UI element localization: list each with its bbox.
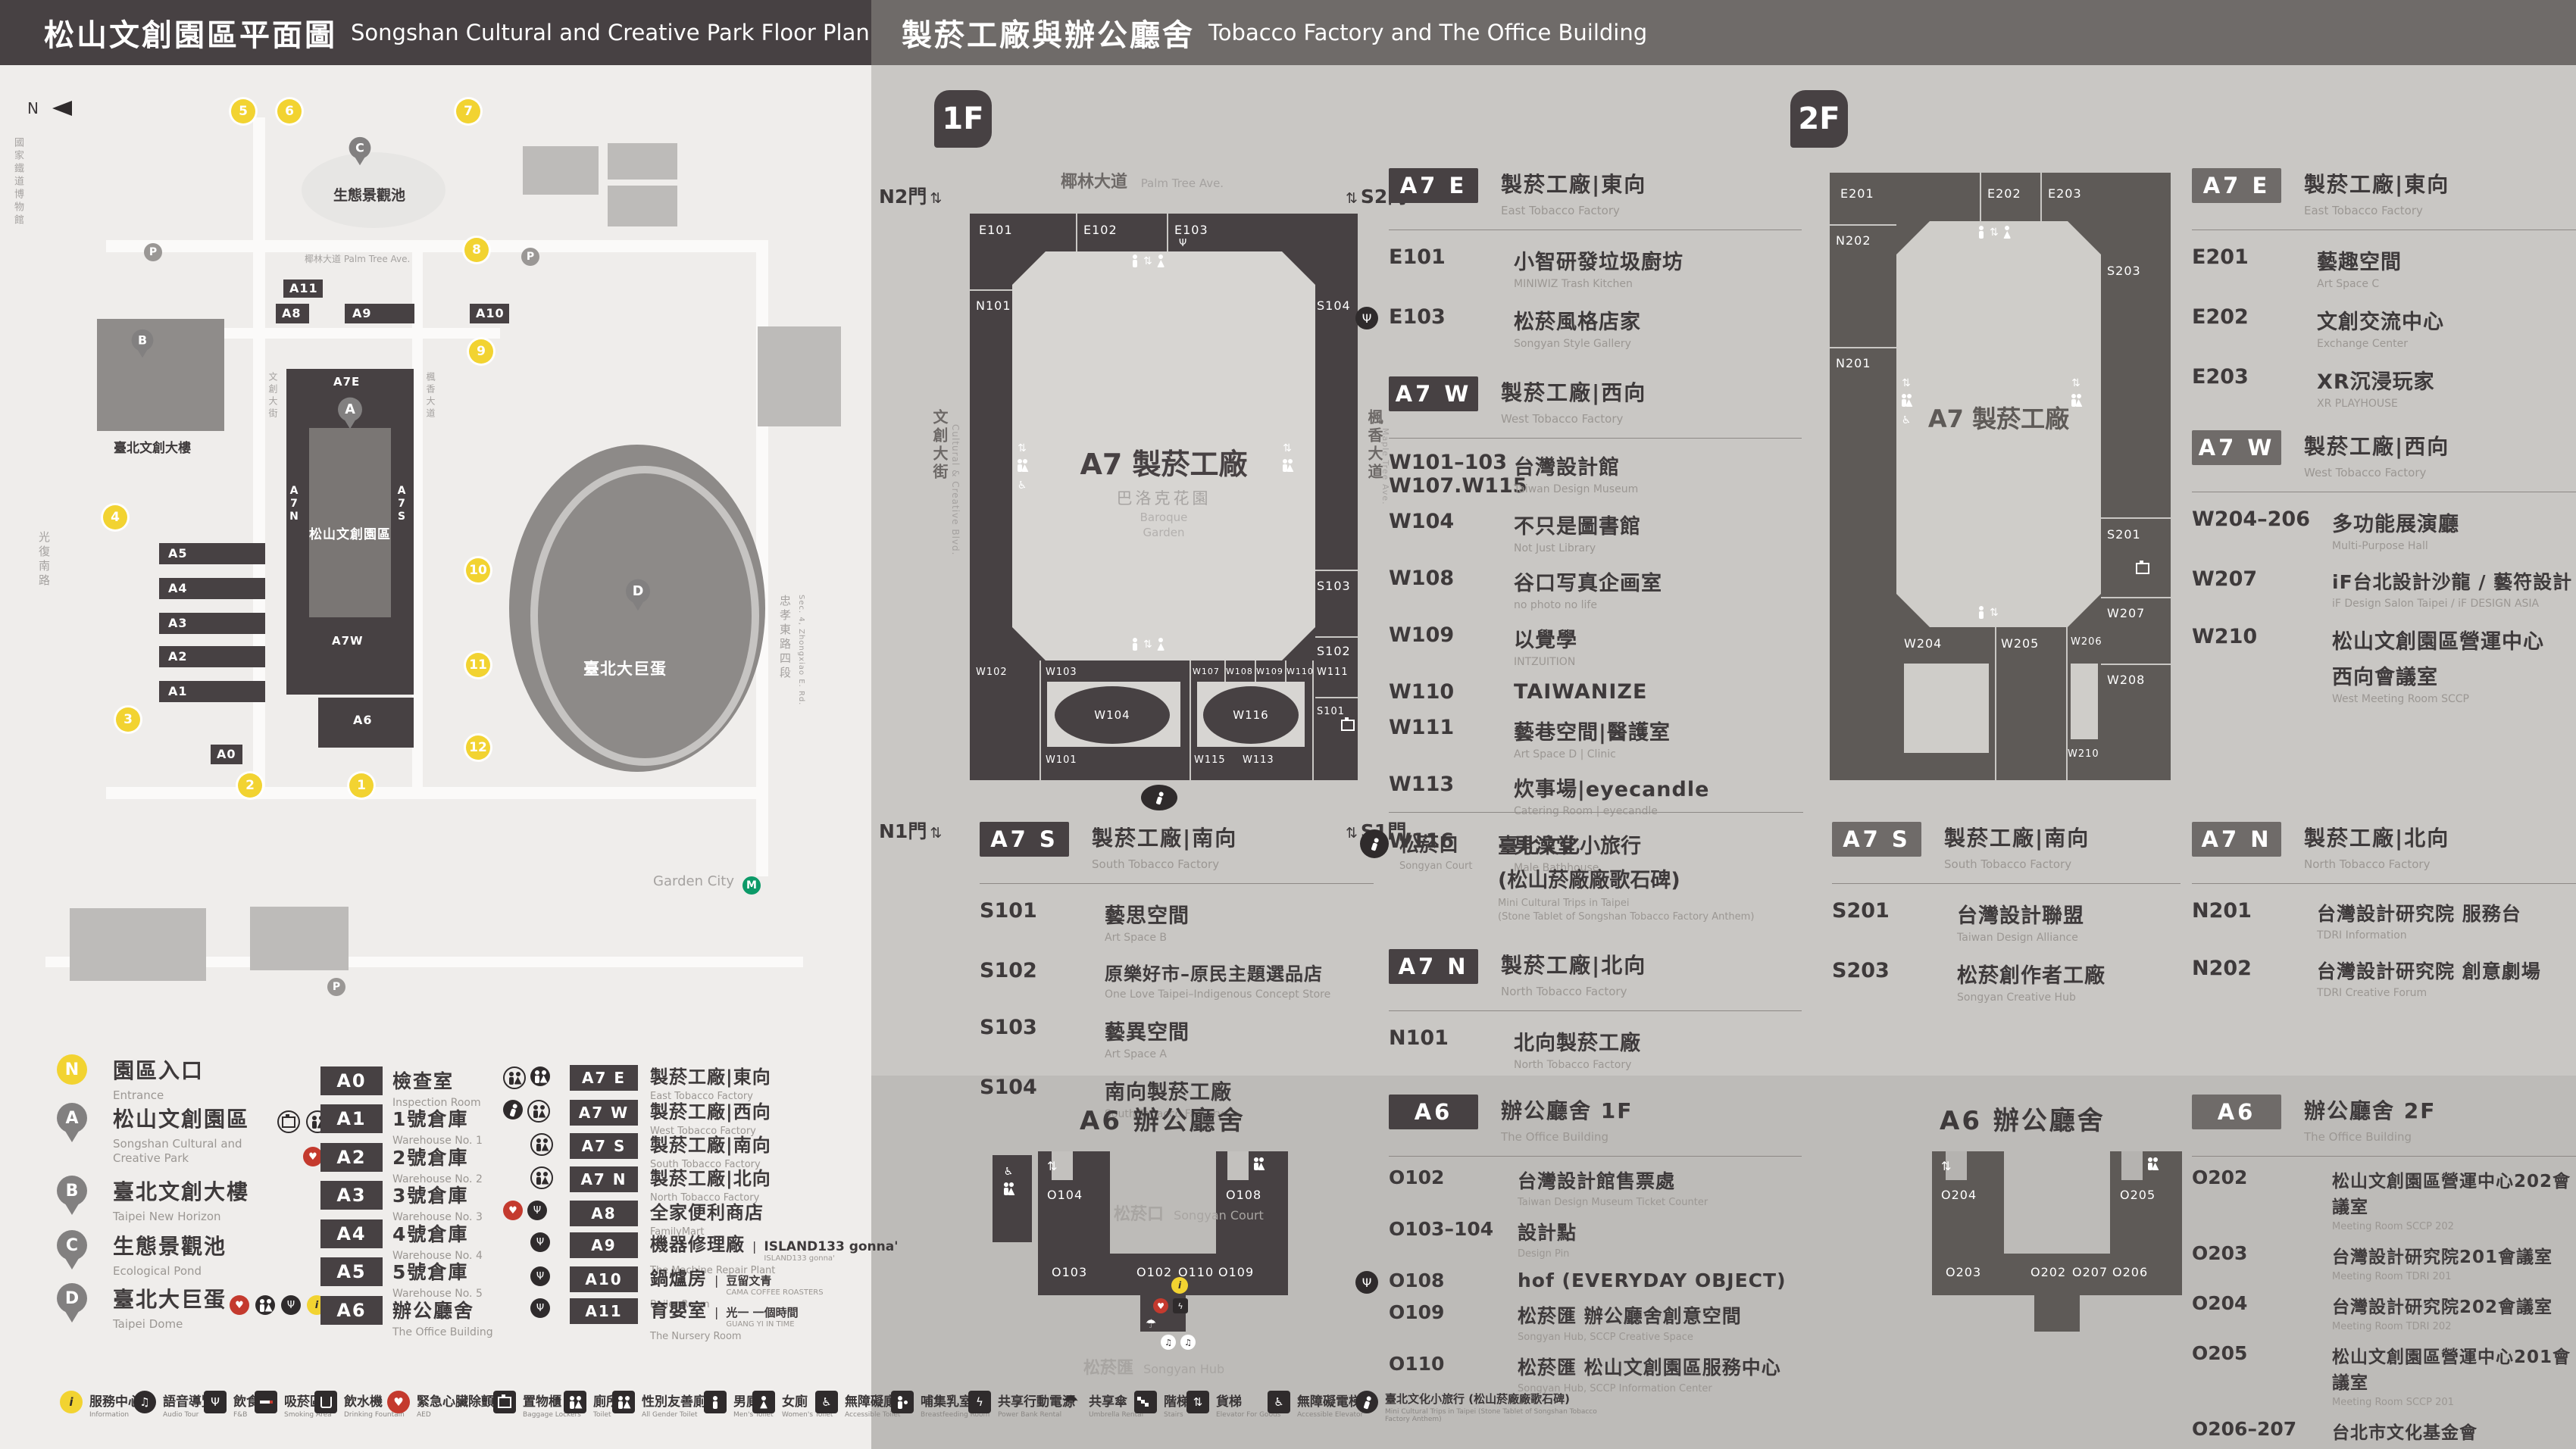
- badge-a6: A6: [320, 1296, 383, 1325]
- room-row: O205 松山文創園區營運中心201會議室Meeting Room SCCP 2…: [2192, 1342, 2576, 1408]
- guangfu-road-label: 光復南路: [36, 531, 52, 589]
- divider: [980, 883, 1374, 884]
- room-en: TDRI Information: [2317, 929, 2521, 942]
- section-badge: A7 W: [1389, 376, 1478, 411]
- plan-room-w113: W113: [1243, 754, 1274, 766]
- a6f1-list-section: A6 辦公廳舍 1F The Office Building O102 台灣設計…: [1389, 1095, 1802, 1394]
- plan-room-s102: S102: [1317, 644, 1351, 658]
- plan-room-e202: E202: [1987, 186, 2021, 201]
- lockers-icon: [1341, 720, 1355, 734]
- facility-item: ⇅貨梯Elevator For Goods: [1186, 1391, 1280, 1419]
- info-icon: i: [1171, 1277, 1188, 1294]
- divider: [2192, 492, 2576, 492]
- legend-zh: 辦公廳舍: [392, 1296, 493, 1323]
- pin-c: C: [349, 137, 371, 167]
- gate-label: N2門: [879, 186, 927, 208]
- shop-name: 光一 一個時間: [726, 1306, 798, 1319]
- section-title-en: West Tobacco Factory: [1501, 412, 1646, 426]
- badge-a1: A1: [320, 1104, 383, 1133]
- person-glyph: [515, 1072, 521, 1085]
- north-arrow: N: [27, 99, 72, 117]
- person-glyph: [2152, 1157, 2158, 1170]
- room-row: W108 谷口写真企画室no photo no life: [1389, 567, 1802, 611]
- toilet-glyph: [2147, 1157, 2158, 1173]
- street-en: Palm Tree Ave.: [1141, 176, 1224, 190]
- entrance-9: 9: [469, 339, 493, 364]
- toilet-glyph: [1003, 1182, 1014, 1198]
- person-glyph: [1978, 226, 1984, 239]
- legend-en: Songshan Cultural and Creative Park: [113, 1137, 287, 1166]
- entrance-1: 1: [349, 773, 374, 798]
- divider: [2101, 597, 2171, 598]
- warehouse-a5: A5: [159, 543, 265, 564]
- stairs-glyph: ⇅: [1902, 377, 1911, 389]
- divider: [2040, 173, 2042, 221]
- cc-blvd-label: 文創大街: [929, 409, 951, 482]
- toilet-glyph: [1282, 459, 1293, 475]
- mens-toilet-icon: [704, 1391, 727, 1413]
- north-label: N: [27, 99, 39, 117]
- zhongxiao-road-label-en: Sec. 4, Zhongxiao E. Rd.: [797, 595, 805, 705]
- row-icons: [503, 1066, 550, 1089]
- room-en: One Love Taipei–Indigenous Concept Store: [1105, 988, 1330, 1001]
- aed-icon: ♥: [503, 1201, 523, 1220]
- room-code: W104: [1389, 510, 1514, 554]
- room-row: W101–103W107.W115 台灣設計館Taiwan Design Mus…: [1389, 451, 1802, 498]
- room-en: Art Space D | Clinic: [1514, 748, 1671, 760]
- stairs-glyph: ⇅: [1941, 1159, 1952, 1173]
- a7-courtyard: [309, 428, 391, 617]
- plan-room-w108: W108: [1226, 667, 1253, 676]
- room-row: O109 松菸匯 辦公廳舍創意空間Songyan Hub, SCCP Creat…: [1389, 1301, 1802, 1343]
- section-badge: A6: [1389, 1095, 1478, 1129]
- room-zh: 松菸匯 松山文創園區服務中心: [1518, 1353, 1781, 1380]
- lockers-icon: [2136, 563, 2149, 577]
- room-zh: 多功能展演廳: [2332, 507, 2459, 537]
- pin-letter: B: [57, 1176, 87, 1206]
- court-en: Songyan Court: [1399, 860, 1498, 872]
- plan-room-e201: E201: [1840, 186, 1874, 201]
- a6f2-south-stub: [2034, 1295, 2080, 1332]
- badge-a10: A10: [570, 1266, 638, 1292]
- plan-room-e102: E102: [1083, 223, 1118, 237]
- room-en: Songyan Hub, SCCP Creative Space: [1518, 1332, 1742, 1343]
- a6f1-plan-title: A6 辦公廳舍: [1080, 1100, 1246, 1137]
- parking-icon: P: [144, 243, 162, 261]
- plan-room-s104: S104: [1317, 298, 1351, 313]
- map-a7e-label: A7E: [333, 375, 360, 389]
- room-en: Meeting Room SCCP 202: [2332, 1221, 2576, 1232]
- person-glyph: [617, 1396, 623, 1409]
- badge-a0: A0: [320, 1066, 383, 1095]
- room-zh: 台灣設計聯盟: [1957, 899, 2084, 929]
- room-row: E203 XR沉浸玩家XR PLAYHOUSE: [2192, 365, 2576, 410]
- room-row: N202 台灣設計研究院 創意劇場TDRI Creative Forum: [2192, 957, 2576, 999]
- legend-zh: 機器修理廠: [650, 1229, 745, 1256]
- room-code: W108: [1389, 567, 1514, 611]
- room-zh: 以覺學: [1514, 623, 1577, 653]
- room-row: O110 松菸匯 松山文創園區服務中心Songyan Hub, SCCP Inf…: [1389, 1353, 1802, 1394]
- aed-icon: ♥: [1153, 1298, 1168, 1313]
- walker-glyph: [1155, 791, 1164, 804]
- room-zh: 台灣設計館: [1514, 451, 1638, 480]
- section-title-en: East Tobacco Factory: [1501, 204, 1646, 217]
- plan-room-o104: O104: [1047, 1188, 1083, 1202]
- a9-block: A9: [345, 304, 414, 323]
- room-row: S201 台灣設計聯盟Taiwan Design Alliance: [1832, 899, 2181, 944]
- room-row: W104 不只是圖書館Not Just Library: [1389, 510, 1802, 554]
- cigarette-glyph: [260, 1401, 272, 1404]
- plan-room-w102: W102: [976, 667, 1008, 678]
- walker-icon: [503, 1100, 523, 1120]
- room-en: Meeting Room TDRI 202: [2332, 1321, 2553, 1332]
- plan-room-n201: N201: [1836, 356, 1871, 370]
- entrance-6: 6: [277, 99, 302, 123]
- room-zh: 松菸風格店家: [1514, 305, 1641, 335]
- badge-a4: A4: [320, 1219, 383, 1248]
- room-en: Multi-Purpose Hall: [2332, 540, 2459, 552]
- fnb-icon: Ψ: [530, 1298, 550, 1318]
- goods-elevator-icon: ⇅: [1186, 1391, 1209, 1413]
- room-en: Taiwan Design Museum: [1514, 483, 1638, 495]
- legend-en: Entrance: [113, 1088, 204, 1103]
- f1-court-section: 松菸口 Songyan Court 臺北文化小旅行 (松山菸廠廠歌石碑) Min…: [1360, 812, 1803, 923]
- person-glyph: [624, 1396, 630, 1409]
- shop-name-en: GUANG YI IN TIME: [726, 1320, 798, 1329]
- taipei-new-horizon-building: [97, 319, 224, 431]
- toilet-icon: [255, 1295, 275, 1315]
- room-row: N201 台灣設計研究院 服務台TDRI Information: [2192, 899, 2576, 942]
- facility-en: Stairs: [1164, 1411, 1190, 1419]
- room-row: E202 文創交流中心Exchange Center: [2192, 305, 2576, 350]
- plan-room-w205: W205: [2001, 636, 2039, 651]
- accessible-elevator-icon: ♿: [1268, 1391, 1290, 1413]
- a6f2-doorway: [2121, 1151, 2143, 1180]
- map-a9-label: A9: [352, 306, 372, 320]
- palm-ave-label: 椰林大道 Palm Tree Ave.: [305, 252, 410, 265]
- garden-label-en2: Garden: [1012, 526, 1315, 539]
- room-row: O203 台灣設計研究院201會議室Meeting Room TDRI 201: [2192, 1242, 2576, 1282]
- room-code: E201: [2192, 245, 2317, 290]
- railway-museum-label: 國家鐵道博物館: [11, 137, 25, 227]
- section-title-zh: 製菸工廠|東向: [1501, 168, 1646, 198]
- building-block: [758, 326, 841, 426]
- room-row: S103 藝異空間Art Space A: [980, 1016, 1374, 1060]
- plan-room-s203: S203: [2107, 264, 2141, 278]
- plan-room-o109: O109: [1218, 1265, 1254, 1279]
- plan-room-n101: N101: [976, 298, 1011, 313]
- badge-a3: A3: [320, 1181, 383, 1210]
- section-title-en: West Tobacco Factory: [2304, 466, 2449, 479]
- facility-zh: 臺北文化小旅行 (松山菸廠廠歌石碑): [1385, 1391, 1620, 1407]
- garden-label-en1: Baroque: [1012, 511, 1315, 524]
- room-zh: 炊事場|eyecandle: [1514, 773, 1709, 802]
- warehouse-a3: A3: [159, 613, 265, 634]
- aed-icon: ♥: [230, 1295, 249, 1315]
- stairs-glyph: ⇅: [2071, 377, 2080, 389]
- legend-zh: 松山文創園區: [113, 1103, 287, 1133]
- fnb-icon: Ψ: [530, 1232, 550, 1252]
- divider: [2192, 1156, 2576, 1157]
- badge-a9: A9: [570, 1232, 638, 1258]
- room-en: Songyan Creative Hub: [1957, 992, 2106, 1004]
- entrance-badge: N: [57, 1054, 87, 1085]
- a6f2-plan-title: A6 辦公廳舍: [1940, 1100, 2106, 1137]
- legend-zh: 育嬰室: [650, 1295, 707, 1322]
- person-glyph: [1978, 606, 1984, 619]
- person-glyph: [536, 1138, 541, 1151]
- facility-item: Ψ飲食F&B: [204, 1391, 259, 1419]
- plan-room-w116: W116: [1203, 686, 1299, 744]
- divider: [1315, 636, 1358, 638]
- breastfeeding-icon: [891, 1391, 914, 1413]
- accessible-toilet-icon: ♿: [815, 1391, 838, 1413]
- room-zh: iF台北設計沙龍 / 藝符設計: [2332, 567, 2572, 595]
- entrance-10: 10: [466, 558, 490, 582]
- plan-room-e103: E103: [1174, 223, 1208, 237]
- legend-zh: 製菸工廠|西向: [650, 1097, 771, 1123]
- room-en: Meeting Room TDRI 201: [2332, 1271, 2553, 1282]
- room-row: W109 以覺學INTZUITION: [1389, 623, 1802, 668]
- left-title-en: Songshan Cultural and Creative Park Floo…: [351, 20, 870, 45]
- park-overview-map: N 國家鐵道博物館 C 生態景觀池 B 臺北文創大樓: [0, 72, 871, 1051]
- toilet-icon: [527, 1100, 550, 1123]
- row-icons: Ψ: [530, 1266, 550, 1286]
- plan-room-w204: W204: [1904, 636, 1942, 651]
- audio-tour-icon: ♫: [133, 1391, 156, 1413]
- fnb-icon: Ψ: [527, 1201, 547, 1220]
- street-zh: 椰林大道: [1061, 173, 1127, 192]
- legend-place-dome: D 臺北大巨蛋 Taipei Dome: [57, 1283, 227, 1332]
- road: [106, 787, 767, 799]
- shop-name: ISLAND133 gonna': [764, 1239, 898, 1254]
- room-zh: 松菸匯 辦公廳舍創意空間: [1518, 1301, 1742, 1329]
- person-glyph: [542, 1172, 548, 1185]
- room-code: W110: [1389, 680, 1514, 704]
- section-title-zh: 製菸工廠|南向: [1092, 822, 1237, 852]
- room-row: S102 原樂好市–原民主題選品店One Love Taipei–Indigen…: [980, 959, 1374, 1001]
- divider: [1995, 627, 1996, 780]
- floor-plan-poster: 松山文創園區平面圖 Songshan Cultural and Creative…: [0, 0, 2576, 1449]
- map-a8-label: A8: [282, 306, 302, 320]
- room-code: O205: [2192, 1342, 2332, 1408]
- badge-a7s: A7 S: [570, 1133, 638, 1159]
- court-title-en2: (Stone Tablet of Songshan Tobacco Factor…: [1498, 911, 1754, 923]
- legend-zh: 臺北文創大樓: [113, 1176, 249, 1206]
- legend-zh: 5號倉庫: [392, 1257, 483, 1285]
- plan-room-w110: W110: [1286, 667, 1314, 676]
- accessible-glyph: ♿: [1018, 479, 1027, 492]
- divider: [2192, 230, 2576, 230]
- plan-room-w109: W109: [1256, 667, 1283, 676]
- row-icons: Ψ: [530, 1298, 550, 1318]
- room-en: Art Space B: [1105, 932, 1190, 944]
- row-icons: ♥ Ψ: [503, 1201, 547, 1220]
- plan-room-w206: W206: [2071, 636, 2102, 648]
- fnb-icon: Ψ: [204, 1391, 227, 1413]
- info-icon: i: [60, 1391, 83, 1413]
- room-code: N101: [1389, 1026, 1514, 1071]
- divider: [1389, 438, 1802, 439]
- divider: [1832, 883, 2181, 884]
- room-code: E101: [1389, 245, 1514, 290]
- warehouse-a1: A1: [159, 681, 265, 702]
- room-zh: 藝巷空間|醫護室: [1514, 716, 1671, 745]
- stairs-glyph: ⇅: [1047, 1159, 1058, 1173]
- pin-a-letter: A: [338, 398, 362, 422]
- room-zh: 文創交流中心: [2317, 305, 2444, 335]
- facility-cluster-icon: ⇅: [2071, 377, 2081, 410]
- divider: [2192, 883, 2576, 884]
- gate-n1: N1門⇅: [879, 817, 945, 844]
- plan-room-w103: W103: [1046, 667, 1077, 678]
- room-light-area: [1904, 664, 1989, 753]
- room-code: E202: [2192, 305, 2317, 350]
- legend-zh: 製菸工廠|東向: [650, 1062, 771, 1088]
- room-en: no photo no life: [1514, 599, 1662, 611]
- person-glyph: [536, 1172, 541, 1185]
- entrance-2: 2: [238, 773, 262, 798]
- pin-letter: C: [57, 1230, 87, 1260]
- legend-en: Ecological Pond: [113, 1264, 227, 1279]
- room-en: Design Pin: [1518, 1248, 1577, 1260]
- room-en: Taiwan Design Museum Ticket Counter: [1518, 1197, 1708, 1208]
- plan-room-o110: O110: [1178, 1265, 1214, 1279]
- section-title-en: South Tobacco Factory: [1944, 857, 2090, 871]
- room-en: Art Space C: [2317, 278, 2402, 290]
- person-glyph: [2071, 394, 2076, 407]
- facility-item: ♥緊急心臟除顫器AED: [387, 1391, 507, 1419]
- row-icons: Ψ: [530, 1232, 550, 1252]
- warehouse-a2: A2: [159, 646, 265, 667]
- locker-glyph: [2136, 563, 2149, 574]
- parking-icon: P: [521, 248, 539, 266]
- entrance-11: 11: [466, 653, 490, 677]
- room-zh: 台北市文化基金會: [2332, 1418, 2576, 1444]
- pin-a: A: [338, 398, 362, 432]
- room-zh: 台灣設計研究院201會議室: [2332, 1242, 2553, 1268]
- toilet-glyph: [2071, 394, 2081, 410]
- facility-en: Mini Cultural Trips in Taipei (Stone Tab…: [1385, 1408, 1620, 1423]
- row-icons: [503, 1100, 550, 1123]
- plan-room-o203: O203: [1946, 1265, 1981, 1279]
- a0-block: A0: [211, 745, 242, 764]
- person-glyph: [2147, 1157, 2152, 1170]
- lockers-icon: [493, 1391, 516, 1413]
- room-en: TDRI Creative Forum: [2317, 987, 2541, 999]
- facility-zh: 無障礙電梯: [1297, 1391, 1363, 1410]
- person-glyph: [1287, 459, 1293, 472]
- map-a10-label: A10: [476, 306, 505, 320]
- pin-b-letter: B: [132, 329, 154, 351]
- room-row: O103–104 設計點Design Pin: [1389, 1218, 1802, 1260]
- pin-a-legend: A: [57, 1103, 87, 1145]
- room-zh2: 西向會議室: [2332, 660, 2544, 690]
- section-badge: A7 N: [1389, 949, 1478, 984]
- toilet-glyph: [1017, 459, 1027, 475]
- room-en: XR PLAYHOUSE: [2317, 398, 2435, 410]
- f2-plan: A7 製菸工廠 E201 E202 E203 N202 N201 S203 S2…: [1830, 173, 2171, 780]
- room-code: W109: [1389, 623, 1514, 668]
- room-en: Exchange Center: [2317, 338, 2444, 350]
- a8-block: A8: [276, 304, 309, 323]
- section-badge: A7 W: [2192, 430, 2281, 465]
- divider: [1039, 660, 1041, 780]
- pin-b-legend: B: [57, 1176, 87, 1218]
- person-glyph: [897, 1396, 902, 1409]
- section-title-zh: 辦公廳舍 1F: [1501, 1095, 1633, 1125]
- dome-label: 臺北大巨蛋: [583, 657, 667, 679]
- building-block: [608, 186, 677, 226]
- person-glyph: [576, 1396, 581, 1409]
- person-glyph: [1158, 255, 1164, 267]
- legend-zh: 園區入口: [113, 1054, 204, 1085]
- facility-item: ♿無障礙電梯Accessible Elevator: [1268, 1391, 1363, 1419]
- facility-item: i服務中心Information: [60, 1391, 141, 1419]
- plan-room-w210: W210: [2068, 748, 2099, 760]
- cc-blvd-label-en: Cultural & Creative Blvd.: [950, 424, 961, 555]
- fnb-glyph: Ψ: [1179, 238, 1187, 249]
- right-header: 製菸工廠與辦公廳舍 Tobacco Factory and The Office…: [871, 0, 2576, 65]
- stairs-icon: [1134, 1391, 1157, 1413]
- plan-room-o207: O207: [2072, 1265, 2108, 1279]
- a6f2-list-section: A6 辦公廳舍 2F The Office Building O202 松山文創…: [2192, 1095, 2576, 1449]
- person-glyph: [539, 1105, 545, 1118]
- room-zh: 台灣設計館售票處: [1518, 1166, 1708, 1194]
- metro-icon: M: [742, 876, 761, 895]
- room-code: S201: [1832, 899, 1957, 944]
- plan-room-o108: O108: [1226, 1188, 1261, 1202]
- hub-zh: 松菸匯: [1083, 1359, 1133, 1378]
- plan-room-w207: W207: [2107, 606, 2145, 620]
- person-glyph: [508, 1072, 514, 1085]
- plan-room-w107: W107: [1193, 667, 1220, 676]
- room-row: O204 台灣設計研究院202會議室Meeting Room TDRI 202: [2192, 1292, 2576, 1332]
- room-code: S103: [980, 1016, 1105, 1060]
- legend-zh: 製菸工廠|南向: [650, 1130, 771, 1157]
- divider: [1167, 214, 1168, 251]
- left-header: 松山文創園區平面圖 Songshan Cultural and Creative…: [0, 0, 915, 65]
- plan-room-w104: W104: [1055, 686, 1170, 744]
- divider: [1980, 173, 1981, 221]
- court-title-zh2: (松山菸廠廠歌石碑): [1498, 863, 1754, 893]
- legend-zh: 臺北大巨蛋: [113, 1283, 227, 1313]
- room-code: O103–104: [1389, 1218, 1518, 1260]
- room-en: MINIWIZ Trash Kitchen: [1514, 278, 1683, 290]
- room-row: W204–206 多功能展演廳Multi-Purpose Hall: [2192, 507, 2576, 552]
- palm-tree-ave-label: 椰林大道 Palm Tree Ave.: [1061, 168, 1224, 192]
- f1-east-section: A7 E 製菸工廠|東向 East Tobacco Factory E101 小…: [1389, 168, 1802, 350]
- room-zh: 台灣設計研究院202會議室: [2332, 1292, 2553, 1318]
- badge-a11: A11: [570, 1298, 638, 1324]
- entrance-8: 8: [464, 238, 489, 262]
- f1-south-section: A7 S 製菸工廠|南向 South Tobacco Factory S101 …: [980, 822, 1374, 1120]
- plan-room-w111: W111: [1317, 667, 1349, 678]
- room-zh: 設計點: [1518, 1218, 1577, 1245]
- court-zh: 松菸口: [1399, 829, 1498, 857]
- legend-zh: 全家便利商店: [650, 1198, 764, 1224]
- person-glyph: [1022, 459, 1027, 472]
- room-row: N101 北向製菸工廠North Tobacco Factory: [1389, 1026, 1802, 1071]
- facility-cluster-icon: ⇅: [1282, 442, 1293, 475]
- person-glyph: [1132, 638, 1137, 651]
- toilet-icon: [530, 1066, 550, 1086]
- zhongxiao-road-label: 忠孝東路四段: [777, 595, 793, 681]
- legend-place-park: A 松山文創園區 Songshan Cultural and Creative …: [57, 1103, 287, 1166]
- legend-en: Taipei Dome: [113, 1317, 227, 1332]
- all-gender-toilet-icon: [612, 1391, 635, 1413]
- fnb-icon: Ψ: [1355, 307, 1378, 329]
